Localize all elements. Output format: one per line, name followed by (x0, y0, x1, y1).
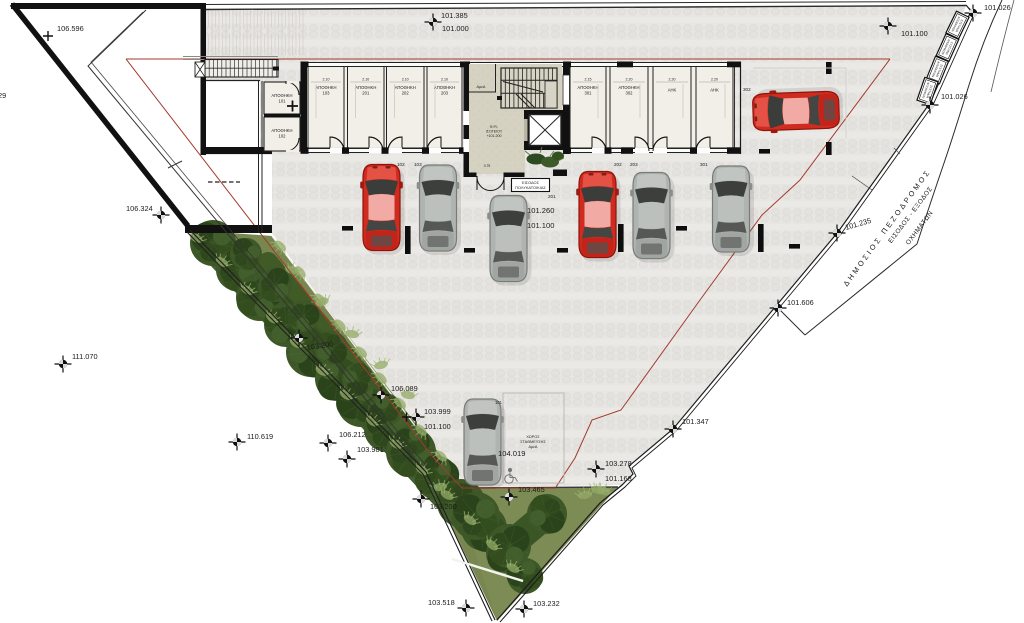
svg-text:ΑΠΟΘΗΚΗ: ΑΠΟΘΗΚΗ (271, 93, 292, 98)
svg-text:203: 203 (630, 162, 638, 167)
svg-text:101: 101 (495, 400, 503, 405)
svg-text:101.100: 101.100 (527, 221, 554, 230)
svg-text:103.465: 103.465 (518, 485, 545, 494)
svg-text:102: 102 (279, 133, 287, 138)
svg-text:111.070: 111.070 (72, 352, 98, 361)
svg-text:101.606: 101.606 (787, 298, 814, 307)
svg-text:2.10: 2.10 (402, 78, 409, 82)
svg-text:ΑΠΟΘΗΚΗ: ΑΠΟΘΗΚΗ (618, 85, 639, 90)
svg-text:103: 103 (414, 162, 422, 167)
svg-text:2.10: 2.10 (323, 78, 330, 82)
svg-text:103.232: 103.232 (533, 599, 560, 608)
svg-text:101: 101 (279, 98, 287, 103)
svg-text:203: 203 (441, 91, 449, 96)
svg-text:Φ.Ρ.Ι.: Φ.Ρ.Ι. (490, 125, 499, 129)
svg-text:202: 202 (614, 162, 622, 167)
svg-text:ΑΠΟΘΗΚΗ: ΑΠΟΘΗΚΗ (395, 85, 416, 90)
svg-text:101.385: 101.385 (441, 11, 468, 20)
svg-text:2.20: 2.20 (669, 78, 676, 82)
svg-text:ΑΠΟΘΗΚΗ: ΑΠΟΘΗΚΗ (577, 85, 598, 90)
svg-text:103.518: 103.518 (428, 598, 455, 607)
svg-text:101.168: 101.168 (605, 474, 632, 483)
svg-text:106.324: 106.324 (126, 204, 153, 213)
svg-text:110.619: 110.619 (247, 432, 273, 441)
svg-text:202: 202 (402, 91, 410, 96)
svg-text:ΑΗΚ: ΑΗΚ (668, 88, 677, 93)
svg-text:301: 301 (585, 91, 593, 96)
svg-text:101.347: 101.347 (682, 417, 709, 426)
svg-text:ΣΤΑΘΜΕΥΣΗΣ: ΣΤΑΘΜΕΥΣΗΣ (520, 440, 546, 444)
svg-text:+101.200: +101.200 (486, 134, 501, 138)
svg-text:302: 302 (743, 87, 751, 92)
svg-text:ΑΠΟΘΗΚΗ: ΑΠΟΘΗΚΗ (315, 85, 336, 90)
svg-text:2.20: 2.20 (626, 78, 633, 82)
svg-text:201: 201 (548, 194, 556, 199)
svg-text:ΑμεΑ: ΑμεΑ (529, 445, 538, 449)
svg-text:101.100: 101.100 (901, 29, 928, 38)
svg-text:104.019: 104.019 (498, 449, 525, 458)
svg-text:101.260: 101.260 (527, 206, 554, 215)
svg-text:103: 103 (323, 91, 331, 96)
svg-text:ΑΠΟΘΗΚΗ: ΑΠΟΘΗΚΗ (434, 85, 455, 90)
svg-text:106.089: 106.089 (391, 384, 418, 393)
svg-text:103.999: 103.999 (424, 407, 451, 416)
svg-text:ΑμεΑ: ΑμεΑ (477, 85, 486, 89)
svg-text:ΑΗΚ: ΑΗΚ (710, 88, 719, 93)
svg-text:2.10: 2.10 (441, 78, 448, 82)
svg-text:ΠΟΛΥΚΑΤΟΙΚΙΑΣ: ΠΟΛΥΚΑΤΟΙΚΙΑΣ (515, 185, 546, 190)
svg-text:106.596: 106.596 (57, 24, 84, 33)
svg-text:103.200: 103.200 (430, 502, 457, 511)
svg-text:2.10: 2.10 (362, 78, 369, 82)
svg-text:ΑΠΟΘΗΚΗ: ΑΠΟΘΗΚΗ (355, 85, 376, 90)
svg-text:29: 29 (0, 91, 6, 100)
svg-text:ΧΩΡΟΣ: ΧΩΡΟΣ (526, 435, 540, 439)
svg-text:103.981: 103.981 (357, 445, 384, 454)
svg-text:2.10x1.10: 2.10x1.10 (538, 146, 552, 150)
svg-text:ΙΣΟΓΕΙΟΥ: ΙΣΟΓΕΙΟΥ (486, 130, 503, 134)
svg-text:302: 302 (626, 91, 634, 96)
svg-text:106.212: 106.212 (339, 430, 366, 439)
svg-text:ΑΠΟΘΗΚΗ: ΑΠΟΘΗΚΗ (271, 128, 292, 133)
svg-text:101.100: 101.100 (424, 422, 451, 431)
svg-text:2.20: 2.20 (711, 78, 718, 82)
svg-text:103.278: 103.278 (605, 459, 632, 468)
svg-text:101.026: 101.026 (984, 3, 1011, 12)
svg-text:0.75: 0.75 (484, 164, 491, 168)
svg-text:101.026: 101.026 (941, 92, 968, 101)
svg-text:201: 201 (362, 91, 370, 96)
svg-text:301: 301 (700, 162, 708, 167)
svg-text:2.15: 2.15 (585, 78, 592, 82)
svg-text:101.000: 101.000 (442, 24, 469, 33)
svg-text:102: 102 (397, 162, 405, 167)
